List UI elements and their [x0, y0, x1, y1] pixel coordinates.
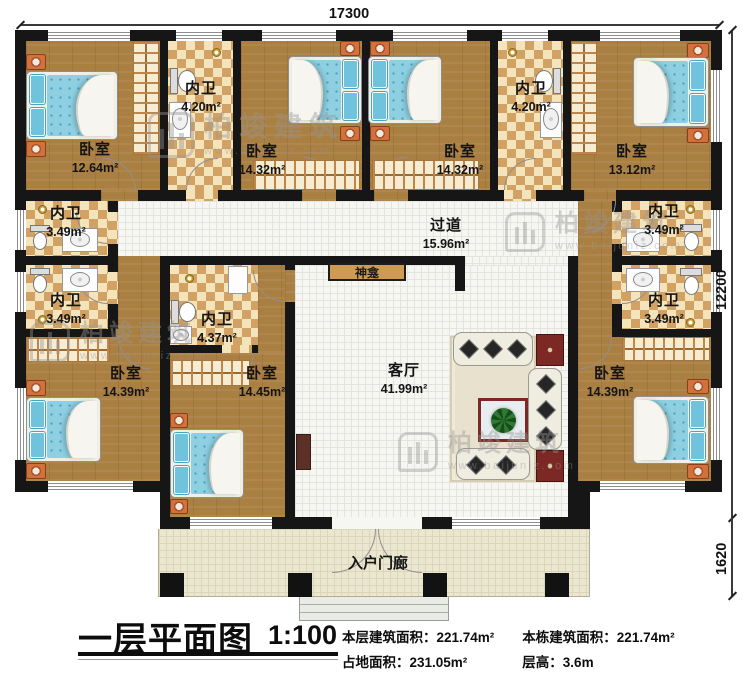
- toilet-bowl: [535, 70, 553, 92]
- side-table: [536, 450, 564, 482]
- sofa-top: [453, 332, 533, 366]
- toilet-bowl: [684, 232, 699, 251]
- dimension-tick: [715, 20, 724, 29]
- side-table: [536, 334, 564, 366]
- door-gap: [302, 190, 336, 201]
- wardrobe: [622, 337, 710, 361]
- nightstand: [170, 413, 188, 428]
- entry-steps: [299, 597, 449, 621]
- door-gap: [108, 212, 118, 244]
- title-underline: [78, 652, 338, 656]
- porch-column: [288, 573, 312, 597]
- wardrobe: [571, 41, 597, 155]
- shower-head-icon: [508, 48, 517, 57]
- window: [711, 210, 722, 250]
- door-gap: [612, 272, 622, 304]
- floor-living-opening: [465, 256, 568, 265]
- bed: [288, 56, 362, 124]
- stat-storey-height: 层高：3.6m: [522, 651, 674, 671]
- sofa-bottom: [456, 448, 530, 480]
- porch-column: [423, 573, 447, 597]
- porch-column: [545, 573, 569, 597]
- dimension-right-main-value: 12200: [714, 252, 732, 328]
- toilet-bowl: [684, 276, 699, 295]
- floor-plan-canvas: 神龛 柏竣建筑www.baijuniz.com 柏竣建筑www.baijuniz…: [0, 0, 750, 674]
- nightstand: [687, 464, 709, 479]
- entry-door-gap: [332, 517, 422, 529]
- nightstand: [26, 380, 46, 396]
- title-underline-thin: [78, 659, 338, 660]
- toilet-tank: [170, 68, 178, 94]
- shower-head-icon: [212, 48, 221, 57]
- nightstand: [340, 126, 360, 141]
- door-gap: [116, 329, 150, 337]
- wall-stub: [455, 265, 465, 291]
- bed: [633, 396, 709, 464]
- bed: [368, 56, 442, 124]
- bed: [170, 429, 244, 498]
- toilet-tank: [30, 268, 50, 275]
- window: [176, 30, 222, 41]
- door-gap: [108, 272, 118, 304]
- nightstand: [370, 126, 390, 141]
- window: [711, 70, 722, 142]
- door-gap: [504, 190, 536, 201]
- window: [262, 30, 336, 41]
- nightstand: [26, 141, 46, 157]
- window: [393, 30, 467, 41]
- door-gap: [101, 190, 138, 201]
- bed: [26, 71, 118, 140]
- window: [452, 517, 540, 529]
- sink-basin: [633, 232, 653, 247]
- wardrobe: [372, 160, 479, 190]
- sink-basin: [173, 329, 189, 341]
- sink-basin: [70, 232, 90, 247]
- stat-floor-area: 本层建筑面积：221.74m²: [342, 626, 494, 646]
- door-gap: [186, 190, 218, 201]
- dimension-right-porch-value: 1620: [714, 532, 732, 586]
- shower-head-icon: [686, 205, 695, 214]
- floor-hallway: [118, 201, 578, 256]
- dimension-line-top: [20, 24, 720, 26]
- wardrobe: [170, 360, 250, 386]
- toilet-tank: [553, 68, 561, 94]
- tv-cabinet: [296, 434, 311, 470]
- nightstand: [687, 128, 709, 143]
- floor-vestibule-left: [118, 256, 160, 337]
- toilet-bowl: [179, 302, 196, 322]
- bed: [26, 397, 101, 462]
- wardrobe: [253, 160, 360, 190]
- door-gap: [222, 345, 252, 353]
- nightstand: [687, 379, 709, 394]
- door-gap: [612, 212, 622, 244]
- dimension-tick: [728, 591, 737, 600]
- nightstand: [687, 43, 709, 58]
- nightstand: [26, 463, 46, 479]
- window: [600, 481, 685, 492]
- window: [15, 210, 26, 250]
- shower-head-icon: [686, 318, 695, 327]
- nightstand: [26, 54, 46, 70]
- wardrobe: [133, 41, 159, 155]
- toilet-tank: [680, 224, 702, 232]
- window: [48, 481, 133, 492]
- toilet-tank: [680, 268, 702, 276]
- sink-basin: [633, 272, 653, 287]
- shrine-niche: 神龛: [328, 263, 406, 281]
- door-gap: [374, 190, 408, 201]
- door-gap: [584, 190, 616, 201]
- sink-basin: [70, 272, 90, 287]
- porch-column: [160, 573, 184, 597]
- nightstand: [340, 41, 360, 56]
- potted-plant: [491, 408, 516, 433]
- shower-cabinet: [228, 266, 248, 294]
- dimension-top-value: 17300: [304, 6, 394, 24]
- shrine-label: 神龛: [355, 264, 379, 281]
- room-label-porch: 入户门廊: [330, 552, 426, 572]
- window: [502, 30, 548, 41]
- nightstand: [170, 499, 188, 514]
- toilet-bowl: [178, 70, 196, 92]
- plan-scale: 1:100: [268, 620, 337, 651]
- sofa-right: [528, 368, 562, 450]
- door-gap: [285, 270, 295, 302]
- window: [15, 388, 26, 460]
- window: [600, 30, 680, 41]
- toilet-tank: [171, 300, 179, 324]
- wardrobe: [26, 338, 110, 362]
- window: [48, 30, 130, 41]
- window: [15, 272, 26, 312]
- window: [190, 517, 272, 529]
- shower-head-icon: [38, 315, 47, 324]
- nightstand: [370, 41, 390, 56]
- toilet-bowl: [33, 232, 47, 250]
- window: [711, 388, 722, 460]
- toilet-tank: [30, 225, 50, 232]
- sink-basin: [172, 108, 188, 130]
- sink-basin: [543, 108, 559, 130]
- shower-head-icon: [38, 205, 47, 214]
- stat-land-area: 占地面积：231.05m²: [342, 651, 494, 671]
- bed: [633, 57, 709, 127]
- toilet-bowl: [33, 275, 47, 293]
- stat-building-area: 本栋建筑面积：221.74m²: [522, 626, 674, 646]
- shower-head-icon: [185, 274, 194, 283]
- plan-stats: 本层建筑面积：221.74m² 本栋建筑面积：221.74m² 占地面积：231…: [342, 626, 675, 671]
